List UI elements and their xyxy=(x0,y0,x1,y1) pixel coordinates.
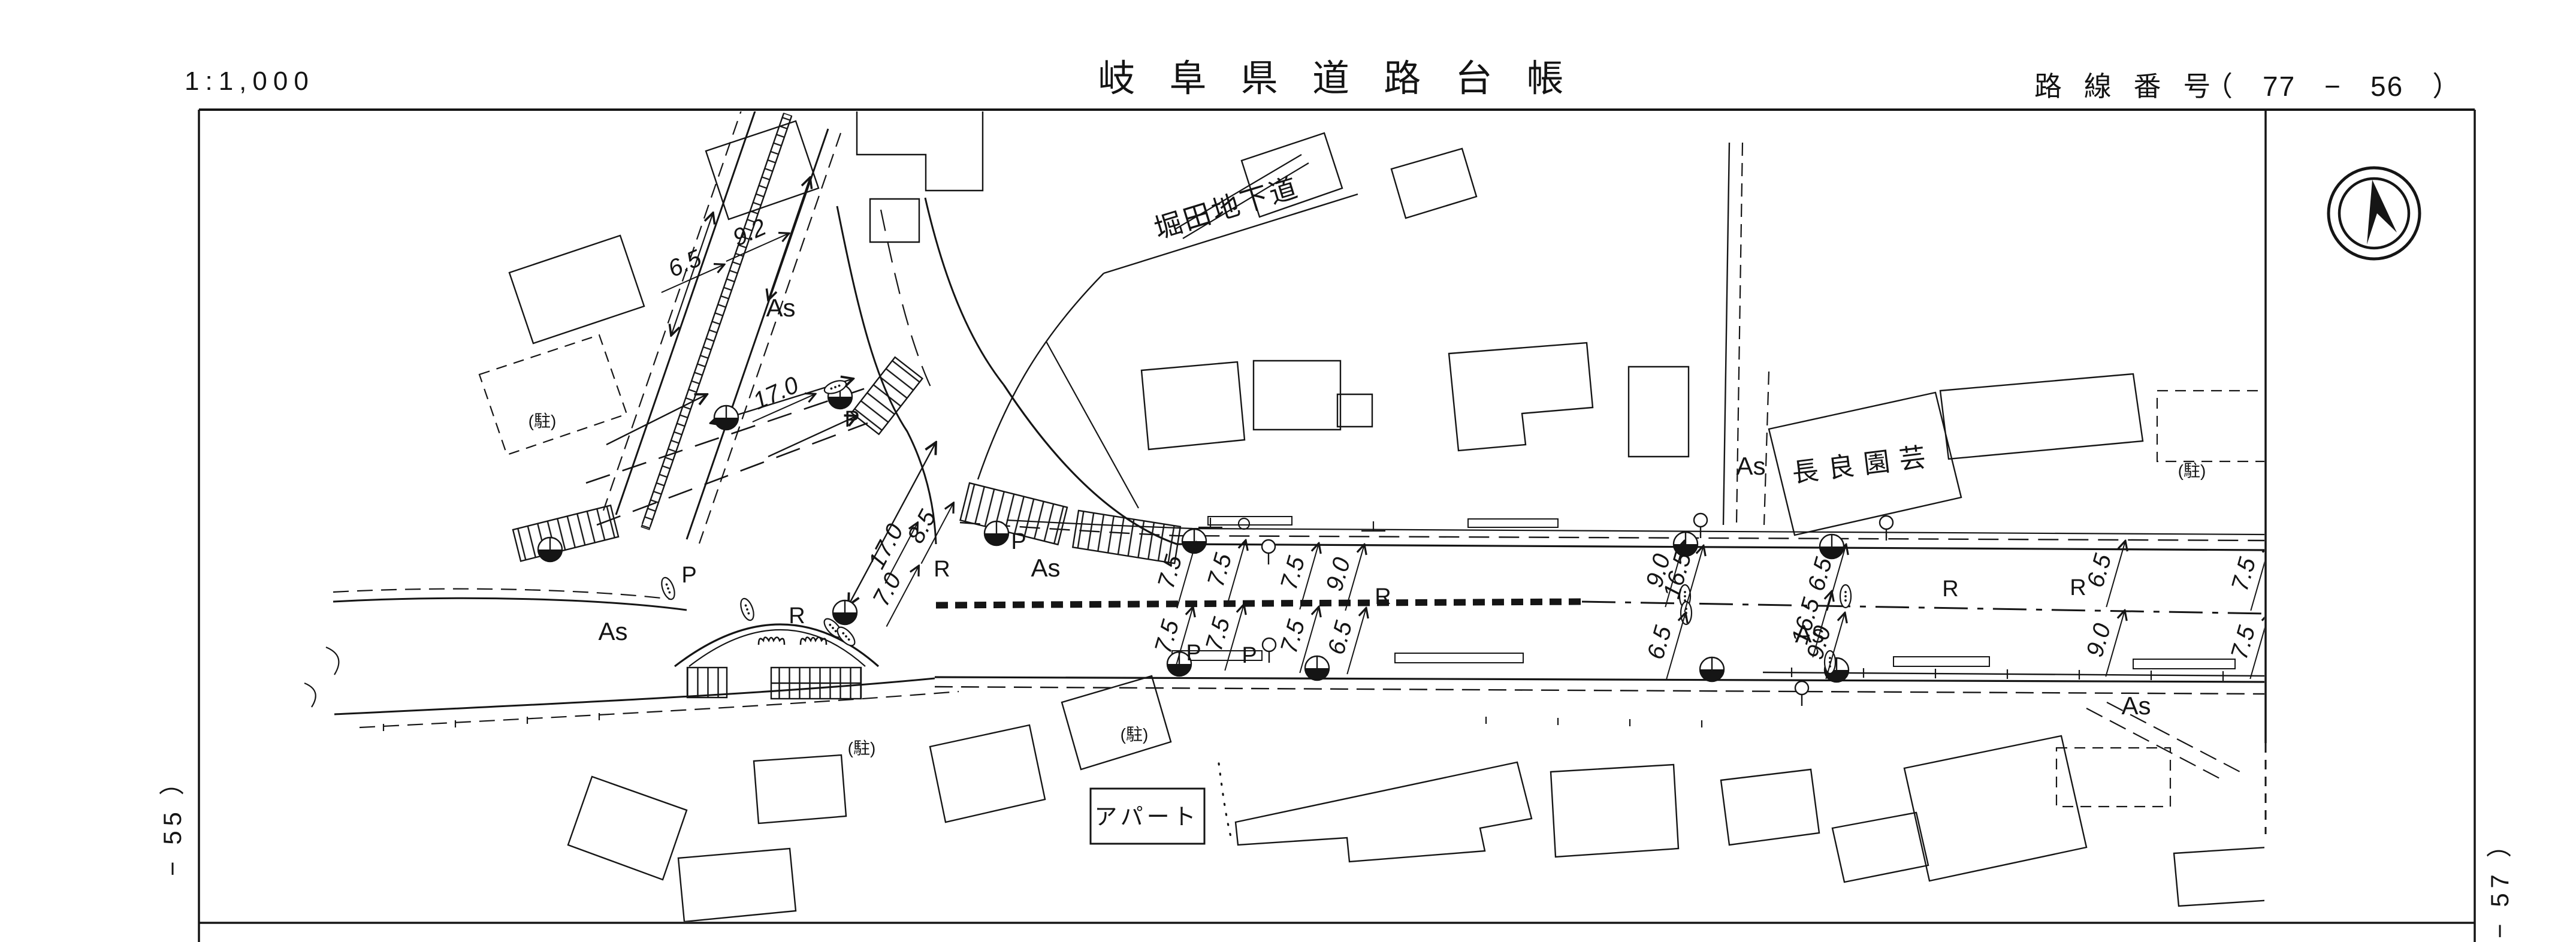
adjacent-sheet-left: − 55 ） xyxy=(158,765,186,876)
surface-as-label-text: As xyxy=(1031,554,1060,582)
road-edge xyxy=(925,198,1004,385)
manhole-icon xyxy=(538,538,562,561)
parking-label-text: (駐) xyxy=(1121,725,1149,744)
dimension-label: 6.5 xyxy=(650,237,724,292)
parking-p-label: P xyxy=(1186,641,1201,666)
nagara-engei-label-text: 長良園芸 xyxy=(1790,442,1937,488)
street-lamp-icon xyxy=(1262,540,1275,564)
nagara-engei-label: 長良園芸 xyxy=(1790,442,1937,488)
dimension-label-text: 7.5 xyxy=(1276,617,1310,656)
dimension-label: 7.5 xyxy=(2221,605,2269,679)
parking-label-text: (駐) xyxy=(2178,461,2206,480)
street-lamp-icon xyxy=(1795,681,1808,706)
parking-label: (駐) xyxy=(2178,461,2206,480)
utility-marker-icon xyxy=(738,597,756,622)
dimension-label: 9.0 xyxy=(2077,602,2125,677)
map-scale: 1:1,000 xyxy=(185,67,315,96)
parking-bay xyxy=(1395,653,1523,663)
manhole-icon xyxy=(1820,535,1844,558)
manhole-icon xyxy=(714,406,738,430)
parking-bay xyxy=(2133,659,2235,669)
dimension-label-text: 7.5 xyxy=(1276,553,1310,593)
parking-label: (駐) xyxy=(529,412,557,430)
street-lamp-icon xyxy=(1880,516,1893,541)
dimension-label-text: 17.0 xyxy=(749,372,802,415)
street-lamp-icon xyxy=(1263,638,1276,663)
dimension-label-text: 6.5 xyxy=(1803,554,1838,594)
surface-as-label: As xyxy=(766,294,795,322)
dimension-label-text: 9.0 xyxy=(1321,555,1356,594)
dimension-label: 7.5 xyxy=(1271,535,1319,609)
annotation-layer: 堀田地下道長良園芸アパートAsAsAsAsAsAs(駐)(駐)(駐)(駐)PPP… xyxy=(529,171,2270,830)
surface-as-label-text: As xyxy=(766,294,795,322)
road-ledger-sheet: 1:1,000 岐 阜 県 道 路 台 帳 路 線 番 号 （ 77 − 56 … xyxy=(0,0,2576,942)
leader-line xyxy=(1046,342,1138,508)
radius-r-label-text: R xyxy=(789,603,805,629)
parking-label-text: (駐) xyxy=(529,412,557,430)
road-edge-north xyxy=(333,598,687,610)
dimension-label-text: 7.5 xyxy=(1201,614,1236,654)
map-canvas: 堀田地下道長良園芸アパートAsAsAsAsAsAs(駐)(駐)(駐)(駐)PPP… xyxy=(304,90,2272,922)
parking-bay xyxy=(1468,519,1558,527)
minor-lines xyxy=(1176,143,2242,841)
median-striped-band xyxy=(936,602,1582,605)
parking-label-text: (駐) xyxy=(848,739,876,757)
parking-p-label: P xyxy=(1011,529,1026,554)
manhole-icon xyxy=(985,521,1008,545)
apartment-label: アパート xyxy=(1094,805,1199,830)
surface-as-label-text: As xyxy=(598,617,627,645)
underpass-stair-hatch xyxy=(687,668,727,698)
parking-p-label-text: P xyxy=(681,563,696,588)
diagonal-street xyxy=(603,100,841,544)
curb-return xyxy=(326,647,339,675)
parking-p-label-text: P xyxy=(844,407,859,432)
parking-p-label-text: P xyxy=(1186,641,1201,666)
surface-as-label: As xyxy=(598,617,627,645)
dimension-label-text: 6.5 xyxy=(1642,623,1677,662)
dimension-label-text: 6.5 xyxy=(664,244,705,282)
radius-r-label-text: R xyxy=(1942,576,1958,602)
surface-as-label-text: As xyxy=(2121,692,2151,720)
dimension-label-text: 7.0 xyxy=(868,569,907,611)
road-edge-north xyxy=(1004,385,2266,550)
dotted-boundary xyxy=(1219,763,1232,841)
north-arrow-icon xyxy=(2329,168,2420,259)
dimension-label-text: 9.0 xyxy=(2082,621,2116,660)
dimension-label-text: 6.5 xyxy=(2082,551,2117,590)
dimension-label-text: 7.5 xyxy=(2227,554,2261,594)
radius-r-label: R xyxy=(1942,576,1958,602)
parking-p-label-text: P xyxy=(1011,529,1026,554)
underpass-label-text: 堀田地下道 xyxy=(1150,171,1303,244)
road-edge xyxy=(616,104,757,515)
parking-p-label: P xyxy=(1242,643,1257,668)
parking-p-label-text: P xyxy=(1242,643,1257,668)
parking-p-label: P xyxy=(844,407,859,432)
dimension-label: 9.0 xyxy=(1316,536,1364,611)
guardrail-ticks xyxy=(1792,668,2223,681)
radius-r-label-text: R xyxy=(1375,584,1391,609)
surface-as-label: As xyxy=(2121,692,2151,720)
radius-r-label: R xyxy=(1375,584,1391,609)
utility-pole-icon xyxy=(1239,518,1249,529)
dimension-label: 6.5 xyxy=(1638,605,1686,679)
junction-arrow xyxy=(606,394,707,445)
junction-arrow xyxy=(768,416,857,457)
alley-edge-dashed xyxy=(1764,372,1769,525)
utility-marker-icon xyxy=(659,576,677,601)
manhole-icon xyxy=(833,600,857,624)
curb-return xyxy=(304,683,316,707)
boundary-dashed-line xyxy=(935,687,2266,694)
sheet-title: 岐 阜 県 道 路 台 帳 xyxy=(1098,58,1575,99)
adjacent-sheet-right: − 57 ） xyxy=(2486,828,2514,938)
dimension-label-text: 6.5 xyxy=(1323,618,1358,657)
parking-p-label: P xyxy=(681,563,696,588)
surface-as-label: As xyxy=(1736,452,1765,480)
surface-as-label: As xyxy=(1031,554,1060,582)
radius-r-label: R xyxy=(934,557,950,582)
dimension-label: 7.5 xyxy=(2222,536,2270,611)
dimension-label-text: 7.5 xyxy=(1203,550,1237,590)
parking-bay xyxy=(1894,657,1989,666)
apartment-label-text: アパート xyxy=(1094,805,1199,830)
tree-icon xyxy=(759,638,784,645)
crosswalk-hatch xyxy=(851,357,922,434)
street-lamp-icon xyxy=(1694,514,1707,538)
surface-as-label-text: As xyxy=(1736,452,1765,480)
dimension-label: 8.5 xyxy=(895,489,953,564)
driveway-dashed xyxy=(2086,702,2242,780)
sheet-header: 1:1,000 岐 阜 県 道 路 台 帳 路 線 番 号 （ 77 − 56 … xyxy=(185,58,2461,102)
underpass-label: 堀田地下道 xyxy=(1150,171,1303,244)
route-number-value: （ 77 − 56 ） xyxy=(2205,71,2461,102)
manhole-icon xyxy=(1305,656,1329,680)
dimension-label-text: 7.5 xyxy=(2226,623,2261,662)
dimension-label-text: 9.2 xyxy=(729,214,770,252)
parking-label: (駐) xyxy=(1121,725,1149,744)
point-symbols xyxy=(538,378,1893,706)
utility-pole-icon xyxy=(1198,518,1222,527)
utility-marker-icon xyxy=(1840,585,1851,608)
manhole-icon xyxy=(1700,657,1724,681)
junction-dashed-line xyxy=(597,423,868,525)
crosswalk-hatch xyxy=(513,505,618,561)
radius-r-label-text: R xyxy=(934,557,950,582)
alley-edge xyxy=(1723,143,1729,525)
building-outline xyxy=(568,676,2272,922)
parking-label: (駐) xyxy=(848,739,876,757)
route-number-label: 路 線 番 号 xyxy=(2034,71,2218,102)
west-road xyxy=(304,589,1702,731)
radius-r-label: R xyxy=(789,603,805,629)
dimension-label: 7.5 xyxy=(1196,596,1244,671)
